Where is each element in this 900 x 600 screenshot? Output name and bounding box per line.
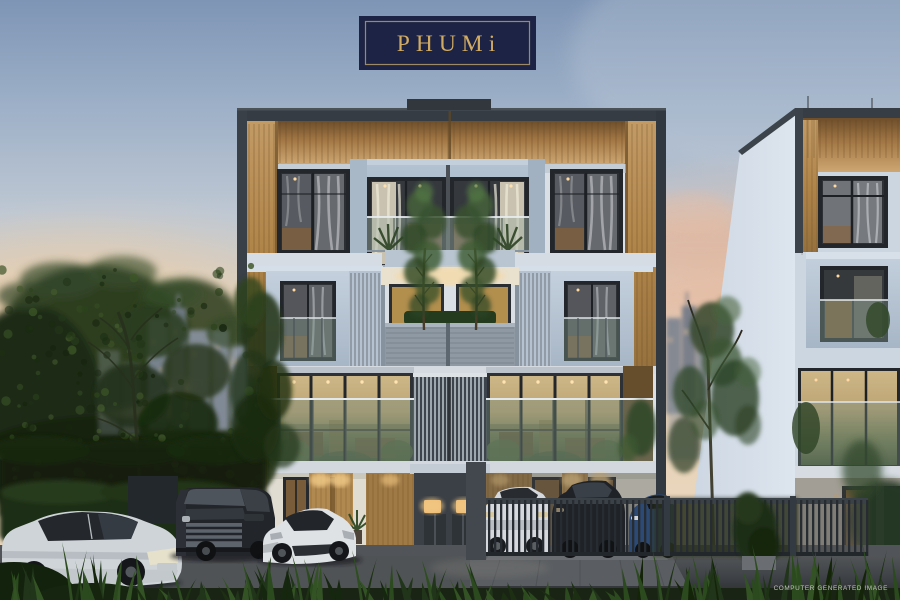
svg-text:PHUMi: PHUMi: [397, 31, 501, 57]
svg-text:COMPUTER GENERATED IMAGE: COMPUTER GENERATED IMAGE: [774, 585, 888, 592]
